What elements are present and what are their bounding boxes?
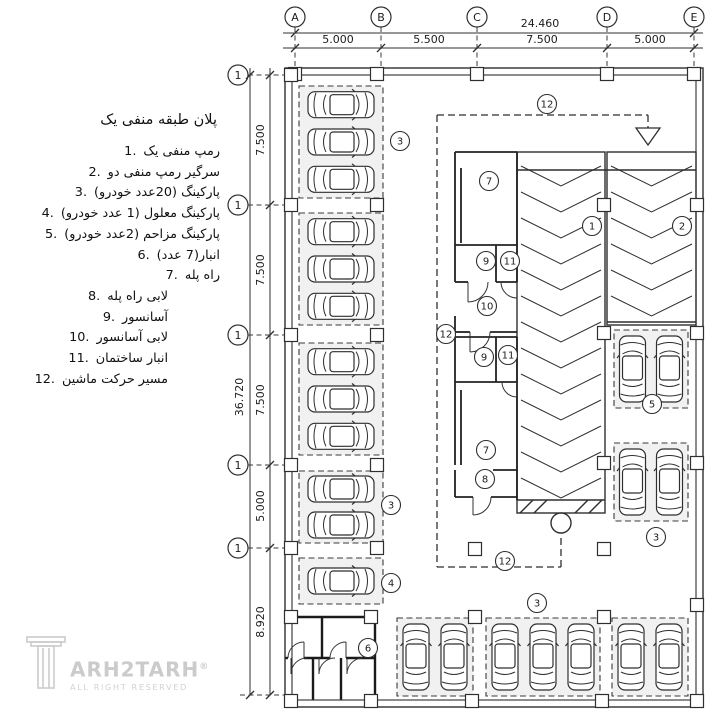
dim-text: 12 (541, 100, 554, 111)
column (598, 611, 611, 624)
grid-bubble: 1 (228, 538, 248, 558)
legend-item: 6.انبار(7 عدد) (14, 246, 220, 267)
dim-text: 7.500 (254, 124, 267, 156)
dim-text: 5.000 (254, 490, 267, 522)
dim-text: 9 (481, 353, 487, 364)
column (598, 543, 611, 556)
dim-text: 1 (235, 542, 242, 555)
column-logo-icon (26, 634, 66, 692)
column (285, 69, 298, 82)
legend-item: 9.آسانسور (14, 308, 220, 329)
ref-callout: 3 (528, 594, 547, 613)
legend-item: 3.پارکینگ (20عدد خودرو) (14, 183, 220, 204)
ref-callout: 12 (496, 552, 515, 571)
column (285, 542, 298, 555)
ref-callout: 11 (501, 252, 520, 271)
dim-text: 7 (486, 177, 492, 188)
car (654, 336, 685, 402)
ref-callout: 7 (480, 172, 499, 191)
grid-bubble: A (285, 7, 305, 27)
dim-text: 3 (388, 501, 394, 512)
car (654, 624, 685, 690)
car (490, 624, 521, 690)
grid-bubble: 1 (228, 65, 248, 85)
grid-bubble: C (467, 7, 487, 27)
column (365, 695, 378, 708)
dim-text: 9 (483, 257, 489, 268)
car (566, 624, 597, 690)
column (371, 459, 384, 472)
column (691, 199, 704, 212)
column (285, 459, 298, 472)
page-title: پلان طبقه منفی یک (14, 112, 220, 128)
car (308, 566, 374, 597)
car (308, 474, 374, 505)
ref-callout: 9 (475, 348, 494, 367)
legend-item: 2.سرگیر رمپ منفی دو (14, 163, 220, 184)
dim-text: 8 (482, 475, 488, 486)
ref-callout: 9 (477, 252, 496, 271)
car (401, 624, 432, 690)
dim-text: 1 (235, 329, 242, 342)
column (691, 457, 704, 470)
watermark-text: ARH2TARH® ALL RIGHT RESERVED (70, 657, 209, 692)
legend-item: 10.لابی آسانسور (14, 328, 220, 349)
grid-bubble: 1 (228, 455, 248, 475)
column (598, 327, 611, 340)
floor-plan-sheet: 24.4605.0005.5007.5005.000ABCDE36.7207.5… (0, 0, 720, 720)
dim-text: E (691, 11, 698, 24)
car (308, 291, 374, 322)
ref-callout: 11 (499, 346, 518, 365)
legend-item: 5.پارکینگ مزاحم (2عدد خودرو) (14, 225, 220, 246)
column (285, 199, 298, 212)
dim-text: 11 (502, 351, 515, 362)
dim-text: 36.720 (233, 378, 246, 417)
car (308, 127, 374, 158)
column (285, 611, 298, 624)
car (654, 449, 685, 515)
grid-bubble: D (597, 7, 617, 27)
column (598, 457, 611, 470)
legend-item: 8.لابی راه پله (14, 287, 220, 308)
dim-text: 7.500 (254, 384, 267, 416)
registered-mark: ® (199, 662, 209, 672)
ref-callout: 2 (673, 217, 692, 236)
dim-text: 7.500 (254, 254, 267, 286)
dim-text: 3 (653, 533, 659, 544)
brand-name: ARH2TARH® (70, 657, 209, 680)
car (308, 254, 374, 285)
ref-callout: 6 (359, 639, 378, 658)
column (601, 68, 614, 81)
column (371, 542, 384, 555)
dim-text: 5.500 (413, 33, 445, 46)
dim-text: 4 (388, 579, 394, 590)
dim-text: 10 (481, 302, 494, 313)
ref-callout: 10 (478, 297, 497, 316)
column (285, 329, 298, 342)
ref-callout: 3 (391, 132, 410, 151)
car (308, 421, 374, 452)
dim-text: 7 (483, 446, 489, 457)
column (466, 695, 479, 708)
dim-text: 1 (235, 199, 242, 212)
car (308, 164, 374, 195)
dim-text: B (377, 11, 385, 24)
column (691, 599, 704, 612)
left-dimension-grid: 36.7207.5007.5007.5005.0008.92011111 (228, 65, 285, 699)
car (439, 624, 470, 690)
car (616, 624, 647, 690)
car (308, 384, 374, 415)
column (598, 199, 611, 212)
car (617, 449, 648, 515)
column (469, 611, 482, 624)
column (691, 327, 704, 340)
ref-callout: 12 (437, 325, 456, 344)
ref-callout: 3 (382, 496, 401, 515)
ref-callout: 4 (382, 574, 401, 593)
car (308, 510, 374, 541)
car (528, 624, 559, 690)
dim-text: 5 (649, 400, 655, 411)
dim-text: C (473, 11, 481, 24)
dim-text: 12 (499, 557, 512, 568)
dim-text: 5.000 (322, 33, 354, 46)
dim-text: 1 (235, 69, 242, 82)
dim-text: 11 (504, 257, 517, 268)
dim-text: A (291, 11, 299, 24)
dim-text: 8.920 (254, 606, 267, 638)
ramp-end-node (551, 513, 571, 533)
car (617, 336, 648, 402)
legend-item: 12.مسیر حرکت ماشین (14, 370, 220, 391)
car (308, 89, 374, 120)
dim-text: D (603, 11, 611, 24)
column (469, 543, 482, 556)
car (308, 346, 374, 377)
legend-item: 11.انبار ساختمان (14, 349, 220, 370)
column (596, 695, 609, 708)
dim-text: 7.500 (526, 33, 558, 46)
column (371, 199, 384, 212)
legend-item: 7.راه پله (14, 266, 220, 287)
dim-text: 3 (534, 599, 540, 610)
ref-callout: 8 (476, 470, 495, 489)
legend-item: 4.پارکینگ معلول (1 عدد خودرو) (14, 204, 220, 225)
top-dimension-grid: 24.4605.0005.5007.5005.000ABCDE (283, 7, 704, 68)
dim-text: 24.460 (521, 17, 560, 30)
dim-text: 3 (397, 137, 403, 148)
rights-text: ALL RIGHT RESERVED (70, 682, 209, 692)
column (371, 329, 384, 342)
dim-text: 12 (440, 330, 453, 341)
ref-callout: 1 (583, 217, 602, 236)
dim-text: 1 (589, 222, 595, 233)
ref-callout: 12 (538, 95, 557, 114)
dim-text: 2 (679, 222, 685, 233)
dim-text: 5.000 (634, 33, 666, 46)
ramp-lane (517, 152, 605, 513)
grid-bubble: 1 (228, 325, 248, 345)
ref-callout: 3 (647, 528, 666, 547)
column (691, 695, 704, 708)
watermark: ARH2TARH® ALL RIGHT RESERVED (26, 634, 209, 692)
column (688, 68, 701, 81)
ref-callout: 7 (477, 441, 496, 460)
ref-callout: 5 (643, 395, 662, 414)
grid-bubble: E (684, 7, 704, 27)
column (365, 611, 378, 624)
car (308, 216, 374, 247)
legend-item: 1.رمپ منفی یک (14, 142, 220, 163)
legend: پلان طبقه منفی یک 1.رمپ منفی یک 2.سرگیر … (14, 112, 220, 390)
grid-bubble: B (371, 7, 391, 27)
dim-text: 1 (235, 459, 242, 472)
dim-text: 6 (365, 644, 371, 655)
column (471, 68, 484, 81)
column (371, 68, 384, 81)
grid-bubble: 1 (228, 195, 248, 215)
column (285, 695, 298, 708)
